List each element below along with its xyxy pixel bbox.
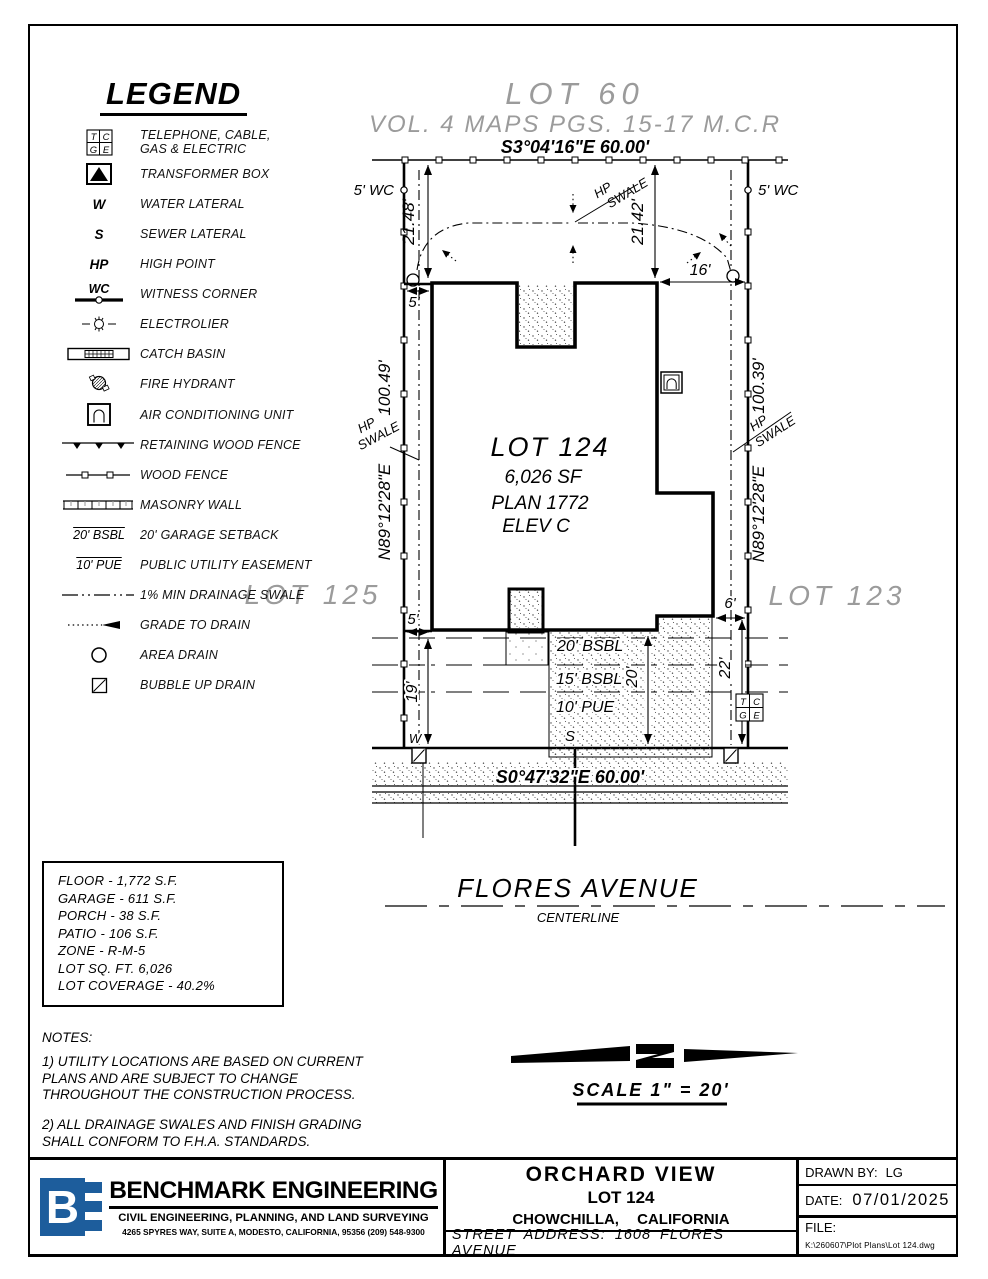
legend-item-label: WATER LATERAL bbox=[140, 197, 245, 211]
logo-letter-e-bars bbox=[85, 1182, 102, 1232]
company-logo: B bbox=[40, 1178, 102, 1236]
legend-item-label: BUBBLE UP DRAIN bbox=[140, 678, 255, 692]
legend-item-wood-fence: WOOD FENCE bbox=[58, 463, 374, 487]
lot-area-label: 6,026 SF bbox=[504, 467, 582, 488]
high-point-symbol: HP bbox=[58, 257, 140, 272]
ac-unit-symbol-icon bbox=[58, 402, 140, 427]
legend-item-label: GRADE TO DRAIN bbox=[140, 618, 250, 632]
masonry-wall-icon bbox=[58, 498, 140, 512]
ac-unit-icon bbox=[661, 372, 682, 393]
retaining-wood-fence-icon bbox=[58, 439, 140, 451]
tcge-utility-box: T C G E bbox=[736, 694, 763, 722]
svg-text:5': 5' bbox=[408, 294, 420, 311]
legend-item-label: CATCH BASIN bbox=[140, 347, 225, 361]
legend-item-label: RETAINING WOOD FENCE bbox=[140, 438, 301, 452]
scale-note: SCALE 1" = 20' bbox=[572, 1080, 729, 1104]
north-bearing-text: S3°04'16"E 60.00' bbox=[501, 137, 650, 157]
svg-text:G: G bbox=[89, 145, 96, 156]
file-row: FILE: K:\260607\Plot Plans\Lot 124.dwg bbox=[799, 1218, 956, 1254]
svg-text:22': 22' bbox=[717, 657, 734, 680]
electrolier-icon bbox=[58, 313, 140, 335]
svg-text:E: E bbox=[753, 711, 760, 722]
garage-area: GARAGE - 611 S.F. bbox=[58, 890, 270, 908]
south-bearing-text: S0°47'32"E 60.00' bbox=[496, 767, 645, 787]
driveway-apron-hatch bbox=[549, 748, 712, 762]
svg-text:6': 6' bbox=[724, 595, 736, 612]
area-summary-box: FLOOR - 1,772 S.F. GARAGE - 611 S.F. POR… bbox=[42, 861, 284, 1007]
legend-item-label: TELEPHONE, CABLE, GAS & ELECTRIC bbox=[140, 128, 271, 156]
witness-corner-right-label: 5' WC bbox=[758, 182, 799, 199]
company-name: BENCHMARK ENGINEERING bbox=[109, 1177, 437, 1209]
bubble-up-drain-right-icon bbox=[724, 748, 738, 763]
svg-text:19': 19' bbox=[404, 681, 421, 703]
legend-item-fire-hydrant: FIRE HYDRANT bbox=[58, 372, 374, 396]
notes-section: NOTES: 1) UTILITY LOCATIONS ARE BASED ON… bbox=[42, 1030, 394, 1164]
legend-item-label: AIR CONDITIONING UNIT bbox=[140, 408, 294, 422]
legend-item-bubble-up-drain: BUBBLE UP DRAIN bbox=[58, 673, 374, 697]
svg-text:15' BSBL: 15' BSBL bbox=[556, 671, 622, 688]
notes-heading: NOTES: bbox=[42, 1030, 394, 1045]
witness-corner-right-icon bbox=[745, 187, 751, 193]
svg-text:20' BSBL: 20' BSBL bbox=[556, 638, 623, 655]
legend-item-label: SEWER LATERAL bbox=[140, 227, 247, 241]
bubble-up-drain-symbol-icon bbox=[58, 677, 140, 694]
date-row: DATE: 07/01/2025 bbox=[799, 1186, 956, 1218]
street-address-row: STREET ADDRESS: 1608 FLORES AVENUE bbox=[446, 1230, 796, 1254]
svg-text:N89°12'28"E: N89°12'28"E bbox=[375, 463, 394, 560]
elevation-label: ELEV C bbox=[502, 516, 570, 537]
company-address: 4265 SPYRES WAY, SUITE A, MODESTO, CALIF… bbox=[108, 1227, 439, 1237]
street-name: FLORES AVENUE CENTERLINE bbox=[385, 873, 945, 925]
legend-item-grade-to-drain: GRADE TO DRAIN bbox=[58, 613, 374, 637]
scale-label: SCALE 1" = 20' bbox=[572, 1080, 729, 1100]
legend-item-area-drain: AREA DRAIN bbox=[58, 643, 374, 667]
svg-text:21.48': 21.48' bbox=[399, 198, 418, 246]
legend-item-witness-corner: WC WITNESS CORNER bbox=[58, 282, 374, 306]
gutter-hatch bbox=[372, 792, 788, 803]
legend-item-label: 1% MIN DRAINAGE SWALE bbox=[140, 588, 304, 602]
project-name: ORCHARD VIEW bbox=[526, 1163, 717, 1187]
area-drain-symbol-icon bbox=[58, 646, 140, 664]
centerline-label: CENTERLINE bbox=[537, 910, 620, 925]
legend-item-high-point: HP HIGH POINT bbox=[58, 252, 374, 276]
legend-item-label: FIRE HYDRANT bbox=[140, 377, 235, 391]
walkway-hatch bbox=[506, 632, 548, 665]
zone: ZONE - R-M-5 bbox=[58, 942, 270, 960]
legend-item-drainage-swale: 1% MIN DRAINAGE SWALE bbox=[58, 583, 374, 607]
legend-title: LEGEND bbox=[100, 76, 247, 116]
water-lateral-label: W bbox=[409, 731, 423, 746]
adjacent-lot-123-label: LOT 123 bbox=[769, 580, 906, 611]
north-arrow-icon bbox=[511, 1044, 798, 1068]
svg-text:100.39': 100.39' bbox=[749, 358, 768, 414]
project-panel: ORCHARD VIEW LOT 124 CHOWCHILLA, CALIFOR… bbox=[446, 1160, 799, 1254]
note-1: 1) UTILITY LOCATIONS ARE BASED ON CURREN… bbox=[42, 1054, 394, 1104]
legend-item-electrolier: ELECTROLIER bbox=[58, 312, 374, 336]
svg-text:10' PUE: 10' PUE bbox=[556, 699, 615, 716]
setback-labels: 20' BSBL 15' BSBL 10' PUE bbox=[556, 638, 623, 716]
svg-text:5': 5' bbox=[407, 611, 419, 628]
transformer-box-icon bbox=[58, 163, 140, 185]
wood-fence-icon bbox=[58, 470, 140, 480]
drawn-by-value: LG bbox=[886, 1165, 903, 1180]
legend-item-label: WOOD FENCE bbox=[140, 468, 228, 482]
legend-item-label: AREA DRAIN bbox=[140, 648, 218, 662]
map-volume-label: VOL. 4 MAPS PGS. 15-17 M.C.R bbox=[369, 111, 781, 138]
legend-item-label: TRANSFORMER BOX bbox=[140, 167, 269, 181]
floor-area: FLOOR - 1,772 S.F. bbox=[58, 872, 270, 890]
lot-coverage: LOT COVERAGE - 40.2% bbox=[58, 977, 270, 995]
grade-to-drain-icon bbox=[58, 620, 140, 630]
svg-text:C: C bbox=[753, 697, 760, 708]
legend-item-garage-setback: 20' BSBL 20' GARAGE SETBACK bbox=[58, 523, 374, 547]
patio-hatch bbox=[519, 285, 573, 345]
drawn-by-row: DRAWN BY: LG bbox=[799, 1160, 956, 1186]
file-label: FILE: bbox=[805, 1220, 950, 1235]
water-lateral-symbol: W bbox=[58, 197, 140, 212]
bubble-up-drain-left-icon bbox=[412, 748, 426, 763]
legend-item-label: MASONRY WALL bbox=[140, 498, 242, 512]
legend-item-retaining-fence: RETAINING WOOD FENCE bbox=[58, 433, 374, 457]
grade-to-drain-arrows bbox=[442, 194, 731, 263]
drawing-info-panel: DRAWN BY: LG DATE: 07/01/2025 FILE: K:\2… bbox=[799, 1160, 956, 1254]
legend-item-pue: 10' PUE PUBLIC UTILITY EASEMENT bbox=[58, 553, 374, 577]
legend-item-label: WITNESS CORNER bbox=[140, 287, 257, 301]
svg-text:21.42': 21.42' bbox=[628, 198, 647, 246]
lot-square-feet: LOT SQ. FT. 6,026 bbox=[58, 960, 270, 978]
porch-area: PORCH - 38 S.F. bbox=[58, 907, 270, 925]
patio-area: PATIO - 106 S.F. bbox=[58, 925, 270, 943]
street-section: S0°47'32"E 60.00' bbox=[372, 748, 788, 803]
svg-text:G: G bbox=[739, 711, 746, 722]
legend-item-water-lateral: W WATER LATERAL bbox=[58, 192, 374, 216]
date-value: 07/01/2025 bbox=[852, 1191, 950, 1210]
pue-symbol: 10' PUE bbox=[58, 558, 140, 572]
date-label: DATE: bbox=[805, 1193, 842, 1208]
svg-text:C: C bbox=[102, 132, 109, 143]
logo-letter-b: B bbox=[40, 1178, 85, 1236]
sewer-lateral-label: S bbox=[565, 728, 575, 745]
legend-item-label: HIGH POINT bbox=[140, 257, 215, 271]
street-name-label: FLORES AVENUE bbox=[457, 873, 699, 903]
legend-item-sewer-lateral: S SEWER LATERAL bbox=[58, 222, 374, 246]
note-2: 2) ALL DRAINAGE SWALES AND FINISH GRADIN… bbox=[42, 1117, 394, 1150]
witness-corner-left-icon bbox=[401, 187, 407, 193]
svg-text:N89°12'28"E: N89°12'28"E bbox=[749, 465, 768, 562]
title-block: B BENCHMARK ENGINEERING CIVIL ENGINEERIN… bbox=[28, 1157, 958, 1257]
legend-item-masonry-wall: MASONRY WALL bbox=[58, 493, 374, 517]
fire-hydrant-icon bbox=[58, 372, 140, 396]
company-panel: B BENCHMARK ENGINEERING CIVIL ENGINEERIN… bbox=[30, 1160, 446, 1254]
file-path: K:\260607\Plot Plans\Lot 124.dwg bbox=[805, 1241, 950, 1252]
svg-text:E: E bbox=[102, 145, 109, 156]
sewer-lateral-symbol: S bbox=[58, 227, 140, 242]
drawn-by-label: DRAWN BY: bbox=[805, 1165, 877, 1180]
bsbl-symbol: 20' BSBL bbox=[58, 528, 140, 542]
svg-text:16': 16' bbox=[690, 262, 712, 279]
svg-text:100.49': 100.49' bbox=[375, 360, 394, 416]
svg-text:20': 20' bbox=[624, 666, 641, 689]
project-lot: LOT 124 bbox=[587, 1188, 654, 1208]
drainage-swale-line-icon bbox=[58, 591, 140, 599]
legend-item-catch-basin: CATCH BASIN bbox=[58, 342, 374, 366]
legend-item-tcge: TCGE TELEPHONE, CABLE, GAS & ELECTRIC bbox=[58, 128, 374, 156]
legend-item-transformer: TRANSFORMER BOX bbox=[58, 162, 374, 186]
catch-basin-icon bbox=[58, 346, 140, 362]
witness-corner-symbol-icon: WC bbox=[75, 283, 123, 306]
plan-number-label: PLAN 1772 bbox=[491, 493, 589, 514]
legend-item-label: ELECTROLIER bbox=[140, 317, 229, 331]
area-drain-right-icon bbox=[727, 270, 739, 282]
porch-hatch bbox=[509, 589, 543, 632]
legend-item-label: PUBLIC UTILITY EASEMENT bbox=[140, 558, 312, 572]
legend: LEGEND TCGE TELEPHONE, CABLE, GAS & ELEC… bbox=[58, 76, 374, 703]
lot-number-label: LOT 124 bbox=[490, 432, 609, 462]
company-tagline: CIVIL ENGINEERING, PLANNING, AND LAND SU… bbox=[108, 1212, 439, 1224]
legend-item-ac-unit: AIR CONDITIONING UNIT bbox=[58, 402, 374, 427]
tcge-symbol-icon: TCGE bbox=[58, 129, 140, 156]
adjacent-lot-60-label: LOT 60 bbox=[505, 76, 644, 111]
legend-item-label: 20' GARAGE SETBACK bbox=[140, 528, 279, 542]
